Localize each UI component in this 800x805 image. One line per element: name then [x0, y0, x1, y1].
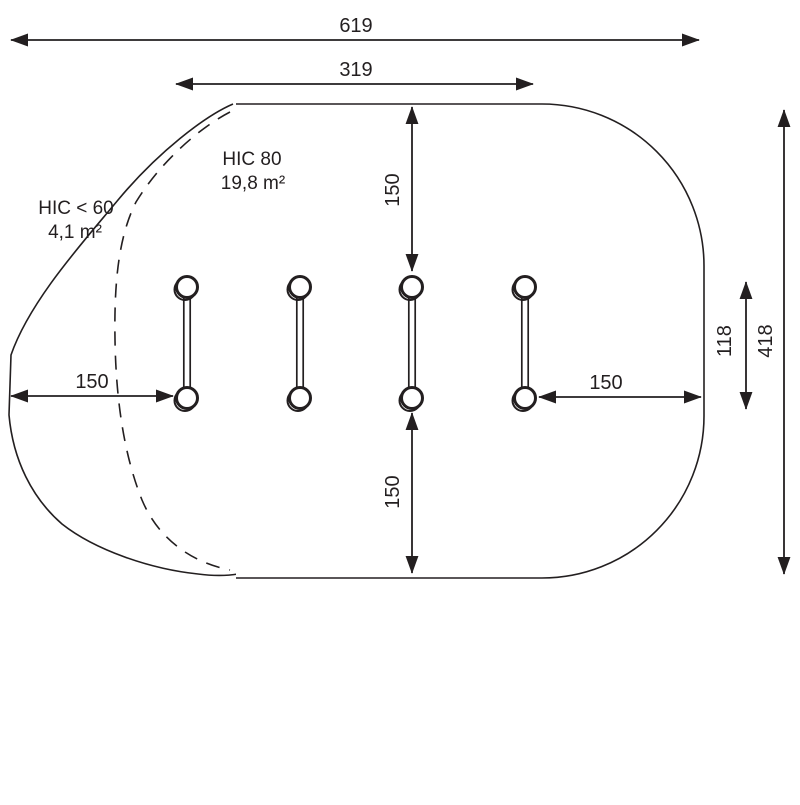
- hic80-zone-area: 19,8 m²: [221, 173, 285, 194]
- hic80-zone-label: HIC 80: [222, 149, 281, 170]
- dimension-total-width-label: 619: [339, 15, 372, 37]
- post-3-bottom-knob: [402, 388, 423, 409]
- dimension-clearance-left-label: 150: [75, 371, 108, 393]
- post-1-top-knob: [177, 277, 198, 298]
- dimension-clearance-right-label: 150: [589, 372, 622, 394]
- dimension-item-width-label: 319: [339, 59, 372, 81]
- hic60-zone-label: HIC < 60: [38, 198, 114, 219]
- post-4-bottom-knob: [515, 388, 536, 409]
- post-2-bottom-knob: [290, 388, 311, 409]
- post-1-bottom-knob: [177, 388, 198, 409]
- hic60-zone-area: 4,1 m²: [48, 222, 102, 243]
- safety-area-outline: [236, 104, 704, 578]
- diagram-page: 619 319 150 150 150 150 11: [0, 0, 800, 800]
- dimension-total-depth-label: 418: [755, 324, 777, 357]
- dimension-clearance-top-label: 150: [382, 173, 404, 206]
- post-2-top-knob: [290, 277, 311, 298]
- dimension-clearance-bottom-label: 150: [382, 475, 404, 508]
- post-4-top-knob: [515, 277, 536, 298]
- footprint-diagram-canvas: 619 319 150 150 150 150 11: [0, 0, 800, 800]
- post-3-top-knob: [402, 277, 423, 298]
- dimension-item-depth-label: 118: [714, 325, 736, 357]
